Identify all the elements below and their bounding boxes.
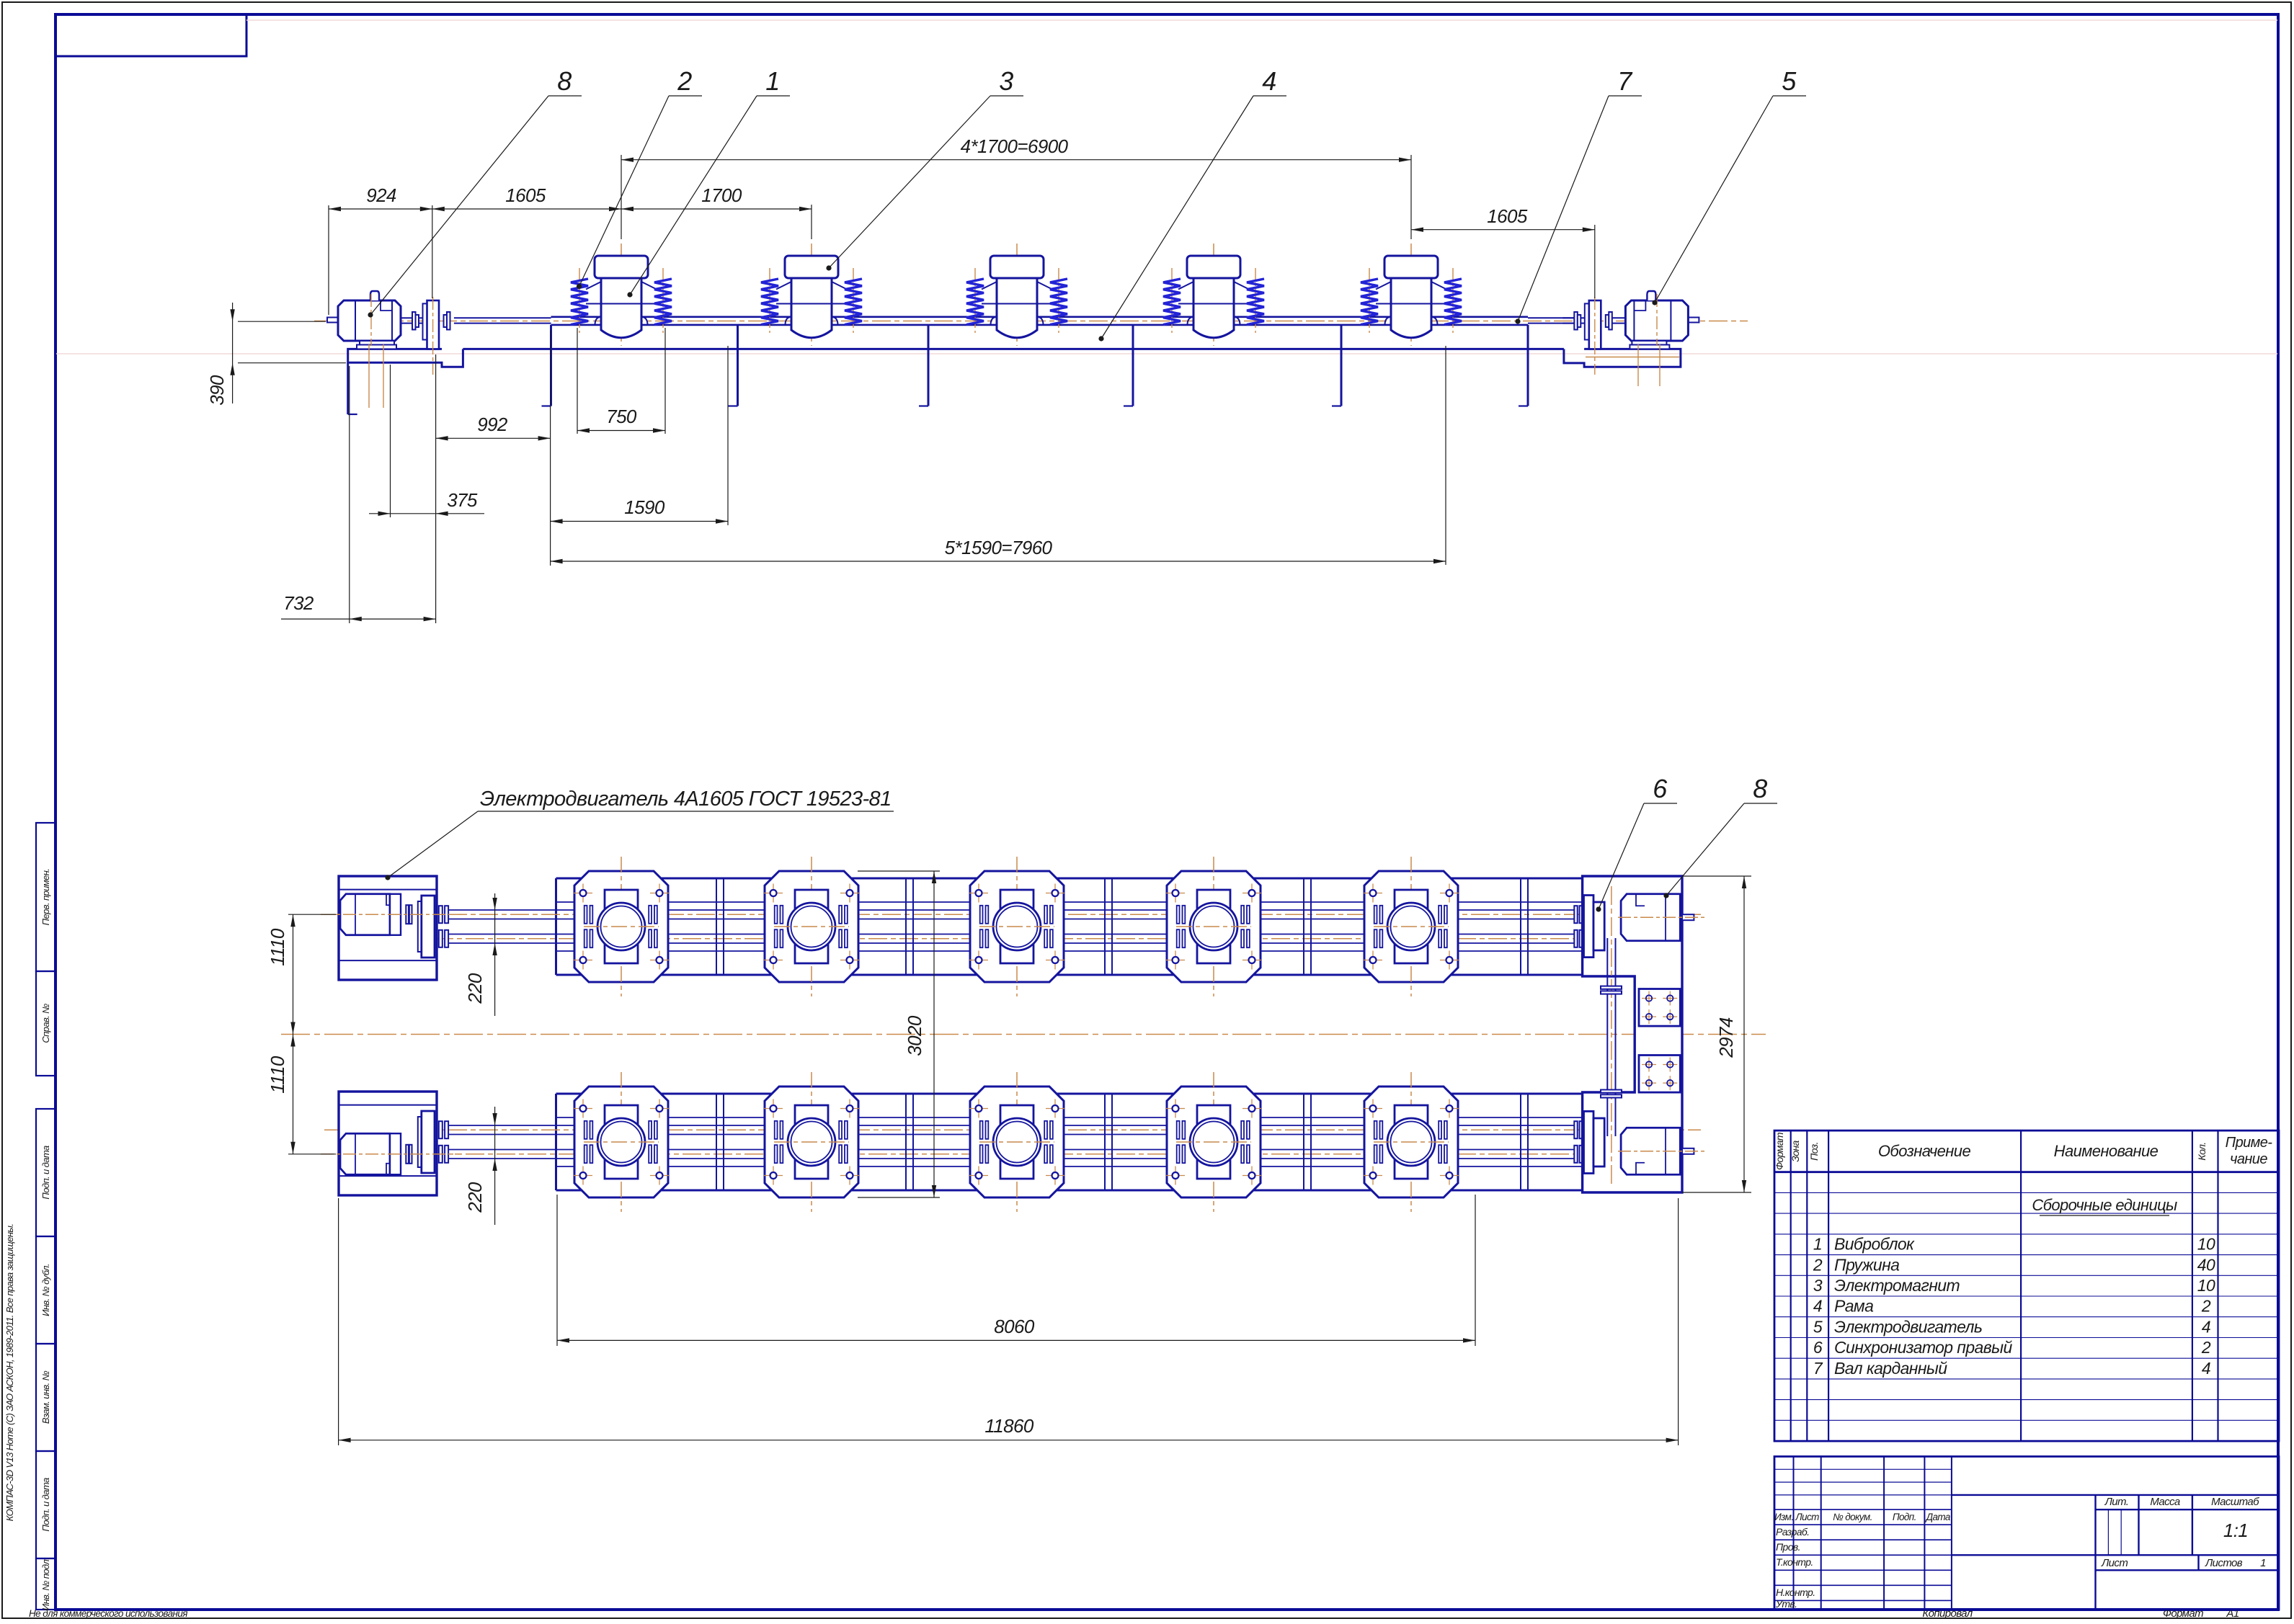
svg-text:Инв. № дубл.: Инв. № дубл. (40, 1264, 51, 1316)
svg-text:Т.контр.: Т.контр. (1776, 1556, 1813, 1568)
svg-text:Подп. и дата: Подп. и дата (40, 1478, 51, 1532)
svg-text:40: 40 (2197, 1255, 2215, 1274)
svg-text:2974: 2974 (1715, 1017, 1737, 1058)
svg-text:Утв.: Утв. (1775, 1598, 1797, 1610)
svg-text:Лист: Лист (1795, 1512, 1819, 1522)
svg-text:375: 375 (447, 489, 478, 511)
svg-text:Масштаб: Масштаб (2211, 1496, 2259, 1508)
svg-text:КОМПАС-3D V13 Home (С) ЗАО АСК: КОМПАС-3D V13 Home (С) ЗАО АСКОН, 1989-2… (4, 1224, 15, 1522)
svg-text:Подп. и дата: Подп. и дата (40, 1146, 51, 1200)
svg-text:Электродвигатель 4А1605 ГОСТ 1: Электродвигатель 4А1605 ГОСТ 19523-81 (480, 788, 892, 811)
svg-text:3: 3 (1813, 1276, 1823, 1295)
svg-text:2: 2 (2201, 1338, 2211, 1357)
svg-text:Не для коммерческого использов: Не для коммерческого использования (29, 1608, 187, 1619)
svg-text:Виброблок: Виброблок (1834, 1235, 1915, 1254)
svg-text:Вал карданный: Вал карданный (1834, 1359, 1947, 1378)
svg-text:220: 220 (464, 973, 486, 1004)
svg-text:1:1: 1:1 (2223, 1520, 2248, 1541)
svg-text:1605: 1605 (1487, 205, 1528, 227)
svg-text:1590: 1590 (624, 496, 665, 518)
svg-text:10: 10 (2197, 1276, 2215, 1295)
svg-text:8: 8 (557, 66, 572, 96)
svg-text:Перв. примен.: Перв. примен. (40, 869, 51, 926)
svg-text:2: 2 (677, 66, 692, 96)
svg-text:Разраб.: Разраб. (1776, 1526, 1809, 1538)
svg-text:10: 10 (2197, 1235, 2215, 1254)
svg-text:Лист: Лист (2101, 1557, 2128, 1569)
svg-text:4: 4 (1813, 1297, 1822, 1316)
svg-text:Электромагнит: Электромагнит (1834, 1276, 1960, 1295)
svg-text:7: 7 (1617, 66, 1633, 96)
svg-text:чание: чание (2230, 1151, 2267, 1167)
svg-text:Взам. инв. №: Взам. инв. № (40, 1370, 51, 1424)
svg-text:Н.контр.: Н.контр. (1776, 1587, 1815, 1598)
svg-text:4*1700=6900: 4*1700=6900 (961, 135, 1069, 157)
svg-text:Листов: Листов (2205, 1557, 2243, 1569)
svg-text:6: 6 (1653, 774, 1668, 803)
svg-text:Формат: Формат (1774, 1132, 1785, 1170)
svg-text:5: 5 (1782, 66, 1797, 96)
svg-text:Наименование: Наименование (2054, 1142, 2159, 1160)
svg-text:732: 732 (283, 592, 314, 614)
svg-text:Пров.: Пров. (1776, 1541, 1800, 1553)
svg-text:Поз.: Поз. (1808, 1142, 1820, 1161)
svg-text:3: 3 (999, 66, 1013, 96)
svg-text:Дата: Дата (1925, 1512, 1951, 1522)
svg-text:Приме-: Приме- (2226, 1135, 2273, 1151)
svg-text:5: 5 (1813, 1318, 1823, 1337)
svg-text:8060: 8060 (994, 1316, 1035, 1337)
svg-text:Изм.: Изм. (1774, 1512, 1793, 1522)
svg-text:2: 2 (2201, 1297, 2211, 1316)
svg-text:992: 992 (477, 414, 508, 435)
svg-text:7: 7 (1813, 1359, 1823, 1378)
svg-text:1110: 1110 (267, 1056, 288, 1094)
svg-text:1700: 1700 (701, 184, 742, 206)
svg-text:1110: 1110 (267, 928, 288, 966)
svg-text:Лит.: Лит. (2104, 1496, 2129, 1508)
svg-text:11860: 11860 (984, 1415, 1034, 1437)
svg-text:6: 6 (1813, 1338, 1823, 1357)
svg-text:Рама: Рама (1834, 1297, 1873, 1316)
svg-text:Кол.: Кол. (2196, 1142, 2208, 1160)
svg-text:Обозначение: Обозначение (1878, 1142, 1971, 1160)
svg-text:4: 4 (2202, 1359, 2210, 1378)
svg-text:924: 924 (366, 184, 396, 206)
svg-text:5*1590=7960: 5*1590=7960 (945, 537, 1053, 558)
svg-text:Электродвигатель: Электродвигатель (1834, 1318, 1982, 1337)
svg-text:390: 390 (206, 375, 228, 406)
svg-text:Подп.: Подп. (1893, 1512, 1916, 1522)
svg-text:2: 2 (1813, 1255, 1823, 1274)
svg-text:4: 4 (1262, 66, 1276, 96)
svg-text:3020: 3020 (904, 1015, 925, 1056)
svg-text:Сборочные единицы: Сборочные единицы (2032, 1196, 2177, 1214)
svg-text:1: 1 (1813, 1235, 1822, 1254)
svg-text:1: 1 (2260, 1557, 2266, 1569)
svg-text:Справ. №: Справ. № (40, 1004, 51, 1043)
svg-text:1: 1 (765, 66, 779, 96)
svg-text:1605: 1605 (505, 184, 546, 206)
svg-text:Масса: Масса (2150, 1496, 2180, 1508)
svg-text:220: 220 (464, 1182, 486, 1213)
svg-text:750: 750 (606, 406, 637, 427)
svg-text:8: 8 (1753, 774, 1767, 803)
svg-text:Пружина: Пружина (1834, 1255, 1899, 1274)
svg-text:Синхронизатор правый: Синхронизатор правый (1834, 1338, 2012, 1357)
svg-text:4: 4 (2202, 1318, 2210, 1337)
svg-text:№ докум.: № докум. (1833, 1512, 1872, 1522)
svg-text:Инв. № подл.: Инв. № подл. (40, 1558, 51, 1610)
svg-text:Зона: Зона (1790, 1140, 1801, 1161)
